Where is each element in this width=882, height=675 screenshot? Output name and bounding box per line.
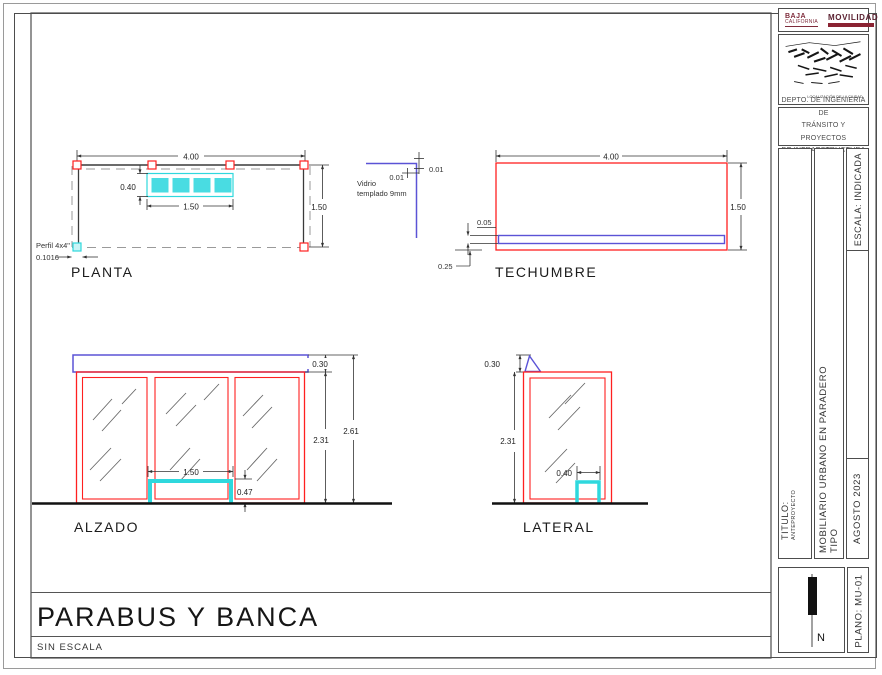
date-text: AGOSTO 2023 (846, 458, 869, 559)
department-line1: DEPTO. DE INGENIERIA DE (779, 95, 868, 120)
titulo-block: TITULO: ANTEPROYECTO (781, 420, 807, 540)
title-strip: PARABUS Y BANCA SIN ESCALA (31, 593, 771, 654)
titulo-label: TITULO: (781, 420, 791, 540)
alzado-bench-width: 1.50 (183, 468, 199, 477)
titulo-value: ANTEPROYECTO (791, 420, 798, 540)
north-label: N (817, 632, 825, 644)
alzado-glass-hatch (90, 384, 277, 481)
north-arrow-icon: N (779, 568, 844, 652)
glass-dim-a: 0.01 (429, 165, 444, 174)
agency-text: MOVILIDAD (828, 14, 878, 27)
drawing-frame (31, 13, 771, 658)
techumbre-roof-outline (496, 163, 727, 250)
lateral-roof-profile (525, 356, 541, 372)
techumbre-fascia-band (499, 236, 725, 244)
planta-dim-depth: 1.50 (311, 203, 327, 212)
project-text: MOBILIARIO URBANO EN PARADERO TIPO (814, 343, 844, 553)
lateral-glass-hatch (545, 383, 585, 483)
techumbre-dim-depth: 1.50 (730, 203, 746, 212)
alzado-roof-band (73, 355, 308, 372)
lateral-bench-depth: 0.40 (556, 469, 572, 478)
techumbre-dim-fascia: 0.05 (477, 218, 492, 227)
brand-line2: CALIFORNIA (785, 20, 818, 27)
lateral-dim-body: 2.31 (500, 437, 516, 446)
techumbre-label: TECHUMBRE (495, 264, 597, 280)
sheet-number-text: PLANO: MU-01 (847, 567, 869, 654)
alzado-dim-roof: 0.30 (312, 360, 328, 369)
empty-cell (846, 250, 869, 459)
alzado-label: ALZADO (74, 519, 139, 535)
lateral-view: 0.30 2.31 0.40 LATERAL (484, 355, 648, 535)
drawing-sheet: 4.00 (0, 0, 882, 675)
techumbre-view: 4.00 1.50 0.05 0.25 TECHUMBRE (438, 150, 747, 280)
planta-dim-bench-width: 1.50 (183, 203, 199, 212)
alzado-view: 1.50 0.47 0.30 2.31 2.61 ALZADO (32, 355, 392, 535)
glass-dim-b: 0.01 (389, 173, 404, 182)
alzado-bench-height: 0.47 (237, 488, 253, 497)
alzado-bench (150, 481, 231, 503)
agency-logo-box: BAJA CALIFORNIA MOVILIDAD (778, 8, 869, 32)
planta-label: PLANTA (71, 264, 133, 280)
sheet-scale-note: SIN ESCALA (37, 642, 103, 653)
planta-post-size: 0.1016 (36, 253, 59, 262)
glass-note-line1: Vidrio (357, 179, 376, 188)
alzado-dim-body: 2.31 (313, 436, 329, 445)
planta-dim-bench-depth: 0.40 (120, 183, 136, 192)
techumbre-dim-edge: 0.25 (438, 262, 453, 271)
planta-dim-width: 4.00 (183, 153, 199, 162)
lateral-label: LATERAL (523, 519, 595, 535)
alzado-frame-outer (77, 372, 305, 503)
sheet-title: PARABUS Y BANCA (37, 602, 319, 632)
alzado-dim-total: 2.61 (343, 427, 359, 436)
planta-highlighted-post (73, 243, 81, 251)
planta-view: 4.00 (36, 150, 329, 280)
lateral-bench-profile (577, 482, 599, 503)
techumbre-dim-width: 4.00 (603, 153, 619, 162)
north-arrow-box: N (778, 567, 845, 653)
planta-bench-slats (152, 178, 232, 193)
scale-text: ESCALA: INDICADA (846, 148, 869, 251)
glass-detail: 0.01 0.01 Vidrio templado 9mm (357, 152, 444, 238)
cad-drawing: 4.00 (0, 0, 882, 675)
department-line2: TRÁNSITO Y PROYECTOS (779, 120, 868, 145)
brand-text: BAJA CALIFORNIA (785, 13, 818, 27)
agency-subtitle-bar (828, 23, 874, 27)
glass-note-line2: templado 9mm (357, 189, 407, 198)
department-box: DEPTO. DE INGENIERIA DE TRÁNSITO Y PROYE… (778, 107, 869, 146)
city-map-graphic (781, 37, 866, 92)
agency-name: MOVILIDAD (828, 14, 878, 22)
lateral-dim-roof: 0.30 (484, 360, 500, 369)
planta-post-note: Perfil 4x4" (36, 241, 70, 250)
